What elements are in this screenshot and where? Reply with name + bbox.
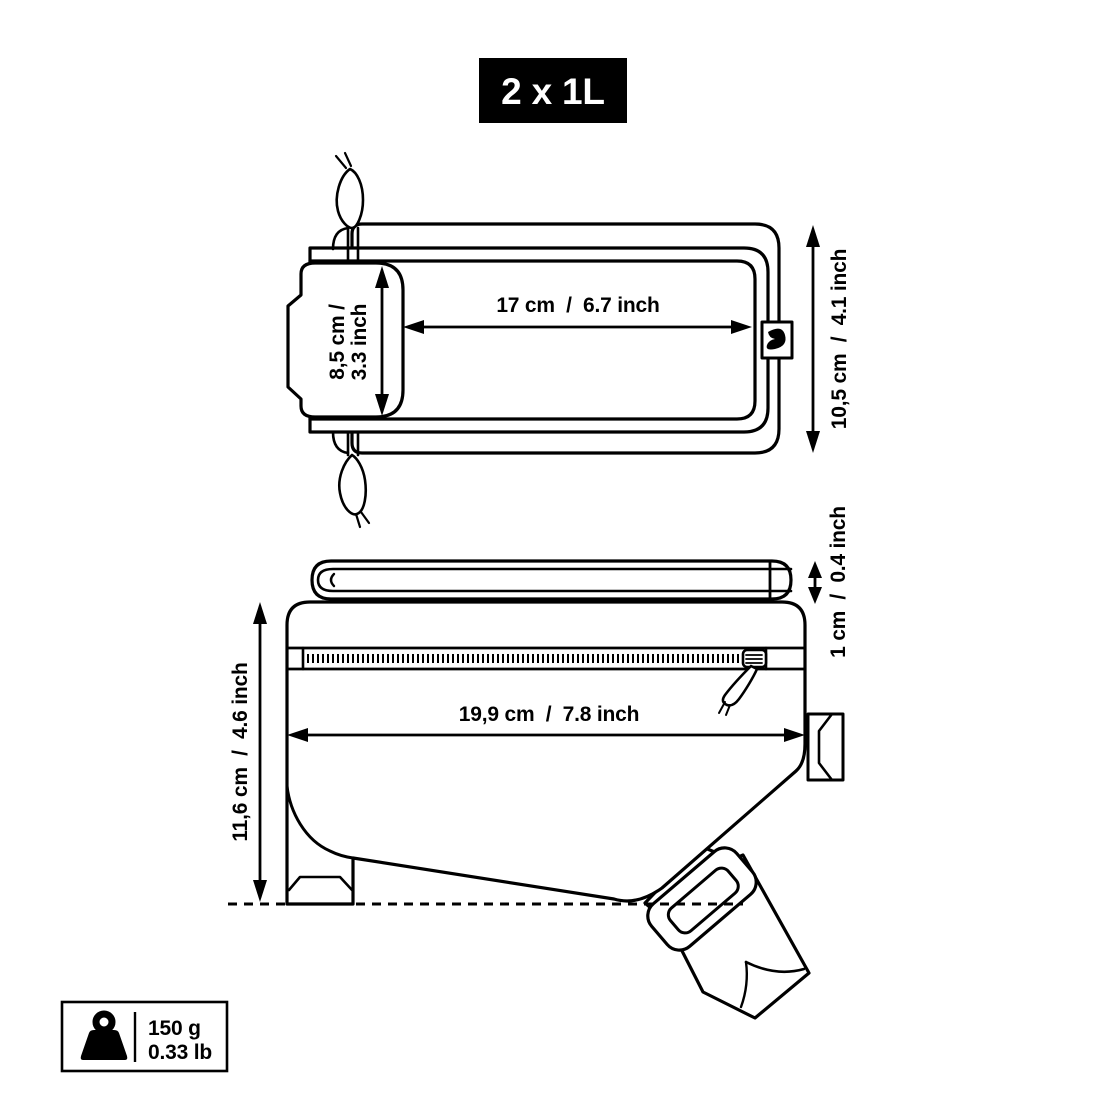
top-view-right-tab xyxy=(762,322,792,358)
side-view-right-tab xyxy=(808,714,843,780)
side-height-label: 11,6 cm / 4.6 inch xyxy=(229,662,252,841)
dimension-lid-thickness: 1 cm / 0.4 inch xyxy=(808,506,850,658)
badge-label: 2 x 1L xyxy=(501,71,605,112)
lid-thickness-label: 1 cm / 0.4 inch xyxy=(827,506,850,658)
top-view-drawing: 17 cm / 6.7 inch 8,5 cm / 3.3 inch 10,5 … xyxy=(288,153,851,527)
top-depth-label: 10,5 cm / 4.1 inch xyxy=(828,249,851,429)
capacity-badge: 2 x 1L xyxy=(479,58,627,123)
lid-slab xyxy=(312,561,791,599)
weight-info-box: 150 g 0.33 lb xyxy=(62,1002,227,1071)
side-view-drawing: 19,9 cm / 7.8 inch 1 cm / 0.4 inch 11,6 … xyxy=(228,506,850,1018)
weight-pounds: 0.33 lb xyxy=(148,1041,212,1064)
dimension-side-height: 11,6 cm / 4.6 inch xyxy=(229,602,267,902)
top-width-label: 17 cm / 6.7 inch xyxy=(496,294,659,317)
window-height-label-line2: 3.3 inch xyxy=(348,304,371,381)
dimension-top-depth: 10,5 cm / 4.1 inch xyxy=(806,225,851,453)
top-zipper-pull-icon xyxy=(333,153,363,261)
window-height-label-line1: 8,5 cm / xyxy=(326,304,349,380)
product-dimension-diagram: 2 x 1L xyxy=(0,0,1100,1100)
weight-grams: 150 g xyxy=(148,1017,201,1040)
side-length-label: 19,9 cm / 7.8 inch xyxy=(459,703,639,726)
